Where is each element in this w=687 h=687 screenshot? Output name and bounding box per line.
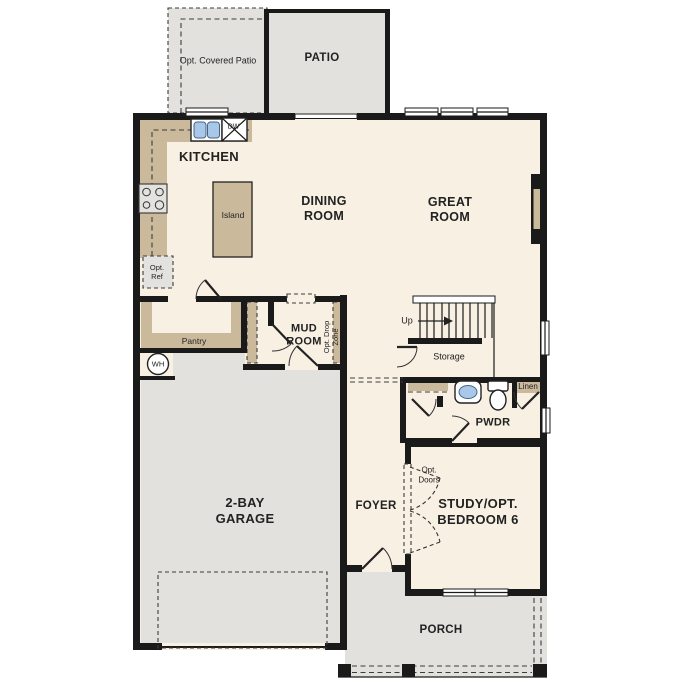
fireplace [531,174,547,244]
opt-doors-opening [404,464,411,554]
covered-patio-label: Opt. Covered Patio [180,56,257,67]
stairs-up-label: Up [401,316,413,327]
powder-sink [455,381,481,403]
dining-room-label: DINING ROOM [301,194,347,225]
toilet [488,381,508,410]
powder-vanity [408,383,448,392]
linen-label: Linen [518,382,538,392]
pantry-label: Pantry [182,336,207,346]
opt-doors-label: Opt. Doors [418,465,439,485]
study-label: STUDY/OPT. BEDROOM 6 [437,496,518,528]
patio-label: PATIO [305,51,340,65]
mud-room-label: MUD ROOM [286,323,321,350]
powder-room-label: PWDR [476,416,511,429]
dishwasher-label: DW [228,124,240,133]
storage-label: Storage [433,352,465,363]
range [139,184,167,213]
island-label: Island [222,210,245,220]
porch-label: PORCH [419,623,462,637]
great-room-label: GREAT ROOM [428,195,472,226]
opt-drop-zone-label: Opt. Drop Zone [322,321,340,354]
opt-ref-label: Opt. Ref [150,263,164,281]
foyer-label: FOYER [355,499,396,513]
floor-plan: Opt. Covered Patio PATIO KITCHEN DW Isla… [0,0,687,687]
mudroom-cased-opening [287,294,315,303]
floor-plan-svg [0,0,687,687]
patio-slider-door [295,114,357,119]
water-heater-label: WH [152,359,165,368]
kitchen-label: KITCHEN [179,149,239,165]
kitchen-sink [191,119,222,141]
garage-label: 2-BAY GARAGE [216,495,275,527]
